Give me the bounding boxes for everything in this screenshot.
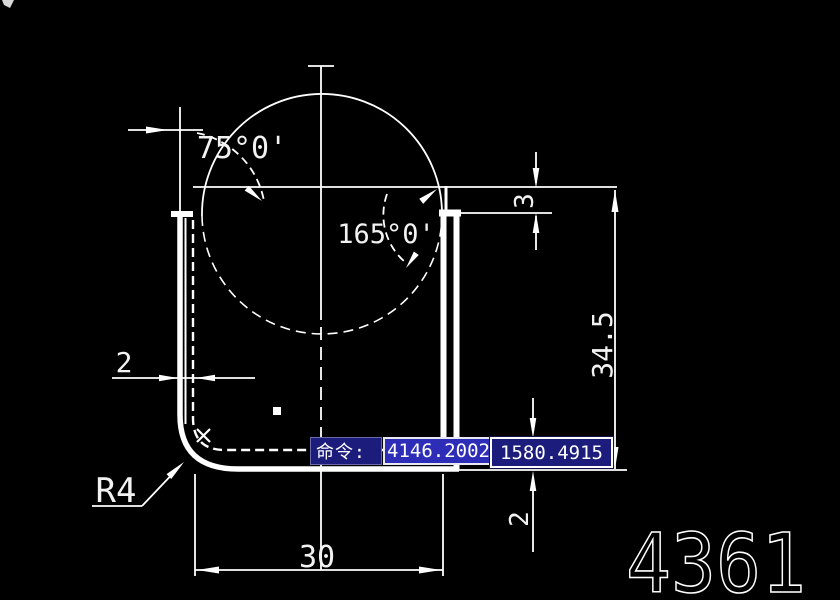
- point-markers: [197, 407, 281, 442]
- dimension-width-30: 30: [299, 540, 335, 575]
- angle-dimension-right: 165°0': [337, 219, 435, 250]
- drawing-svg: 75°0' 165°0' 3 34.5 2 2 30 R4 4361: [0, 0, 840, 600]
- coordinate-x-value: 4146.2002: [385, 439, 492, 463]
- coordinate-y-value: 1580.4915: [500, 442, 603, 464]
- construction-circle: [202, 94, 442, 334]
- command-bar: 命令: 4146.2002 - 1580.4915: [310, 437, 613, 468]
- dimension-height-34-5: 34.5: [586, 311, 619, 378]
- cursor-artifact-icon: [0, 0, 16, 9]
- coordinate-y-field[interactable]: 1580.4915: [490, 437, 613, 468]
- coordinate-x-field[interactable]: 4146.2002 -: [383, 437, 490, 465]
- cad-canvas[interactable]: 75°0' 165°0' 3 34.5 2 2 30 R4 4361 命令: 4…: [0, 0, 840, 600]
- cross-marker-icon: [197, 429, 210, 442]
- command-prompt-label: 命令:: [316, 438, 366, 464]
- angle-dimension-left: 75°0': [197, 131, 287, 166]
- part-number: 4361: [626, 517, 806, 600]
- radius-label: R4: [96, 471, 137, 511]
- dimension-lines: [92, 107, 627, 576]
- arrowheads: [146, 127, 619, 574]
- dimension-thickness-left: 2: [116, 346, 133, 379]
- dimension-thickness-bottom: 2: [505, 511, 535, 527]
- command-prompt[interactable]: 命令:: [310, 437, 382, 465]
- dimension-offset-3: 3: [510, 193, 540, 209]
- square-marker-icon: [273, 407, 281, 415]
